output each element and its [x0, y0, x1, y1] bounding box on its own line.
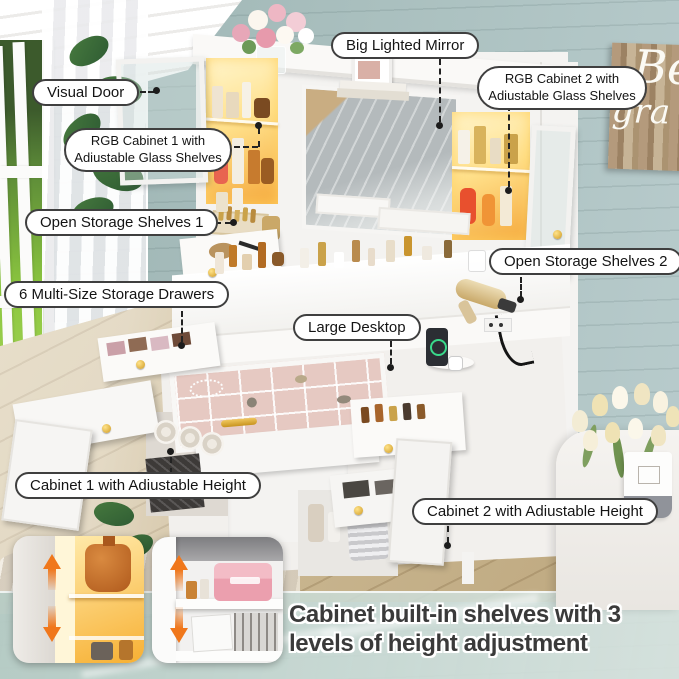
callout-large-desktop: Large Desktop	[293, 314, 421, 341]
callout-open-storage-shelves-2: Open Storage Shelves 2	[489, 248, 679, 275]
leader-dot	[167, 448, 174, 455]
cosmetic-bottle	[216, 192, 228, 212]
drawer-knob	[136, 360, 145, 369]
callout-label: RGB Cabinet 1 with Adiustable Glass Shel…	[72, 133, 224, 167]
leader-dot	[178, 342, 185, 349]
callout-six-multi-size-storage-drawers: 6 Multi-Size Storage Drawers	[4, 281, 229, 308]
callout-label: Visual Door	[47, 84, 124, 101]
leader-line	[520, 277, 522, 297]
callout-open-storage-shelves-1: Open Storage Shelves 1	[25, 209, 218, 236]
leader-dot	[517, 296, 524, 303]
callout-label: Cabinet 2 with Adiustable Height	[427, 503, 643, 520]
height-adjust-up-arrow	[170, 555, 188, 591]
smartwatch	[448, 356, 463, 371]
drawer-knob	[384, 444, 393, 453]
leader-line	[258, 128, 260, 147]
inset-shelf-cabinet-closeup	[152, 537, 283, 663]
rolled-towel	[200, 432, 224, 456]
callout-cabinet-1-adjustable-height: Cabinet 1 with Adiustable Height	[15, 472, 261, 499]
drawer-knob	[354, 506, 363, 515]
leader-dot	[230, 219, 237, 226]
usb-power-outlet	[484, 318, 512, 332]
leader-line	[439, 59, 441, 122]
annotated-product-photo: Be gra	[0, 0, 679, 679]
leader-dot	[444, 542, 451, 549]
feature-caption: Cabinet built-in shelves with 3 levels o…	[289, 600, 679, 659]
callout-label: Big Lighted Mirror	[346, 37, 464, 54]
rolled-towel	[154, 420, 178, 444]
callout-label: Open Storage Shelves 2	[504, 253, 667, 270]
callout-label: RGB Cabinet 2 with Adiustable Glass Shel…	[485, 71, 639, 105]
rolled-towel	[178, 426, 202, 450]
leader-line	[181, 311, 183, 342]
callout-visual-door: Visual Door	[32, 79, 139, 106]
leader-dot	[255, 122, 262, 129]
callout-rgb-cabinet-1: RGB Cabinet 1 with Adiustable Glass Shel…	[64, 128, 232, 172]
leader-dot	[436, 122, 443, 129]
height-adjust-up-arrow	[43, 554, 61, 590]
inset-led-cabinet-closeup	[13, 536, 144, 663]
leader-line	[447, 526, 449, 543]
cosmetic-bottle	[232, 188, 243, 210]
height-adjust-down-arrow	[43, 606, 61, 642]
vanity-leg	[462, 552, 474, 584]
smartphone	[426, 328, 448, 366]
leader-line	[508, 105, 510, 187]
leader-line	[390, 341, 392, 364]
callout-label: Cabinet 1 with Adiustable Height	[30, 477, 246, 494]
door-knob	[553, 230, 562, 239]
height-adjust-down-arrow	[170, 607, 188, 643]
callout-cabinet-2-adjustable-height: Cabinet 2 with Adiustable Height	[412, 498, 658, 525]
callout-label: Open Storage Shelves 1	[40, 214, 203, 231]
leader-dot	[387, 364, 394, 371]
leader-dot	[505, 187, 512, 194]
callout-big-lighted-mirror: Big Lighted Mirror	[331, 32, 479, 59]
callout-label: 6 Multi-Size Storage Drawers	[19, 286, 214, 303]
callout-rgb-cabinet-2: RGB Cabinet 2 with Adiustable Glass Shel…	[477, 66, 647, 110]
drawer-knob	[102, 424, 111, 433]
rose-bouquet	[228, 2, 316, 60]
callout-label: Large Desktop	[308, 319, 406, 336]
leader-dot	[153, 87, 160, 94]
